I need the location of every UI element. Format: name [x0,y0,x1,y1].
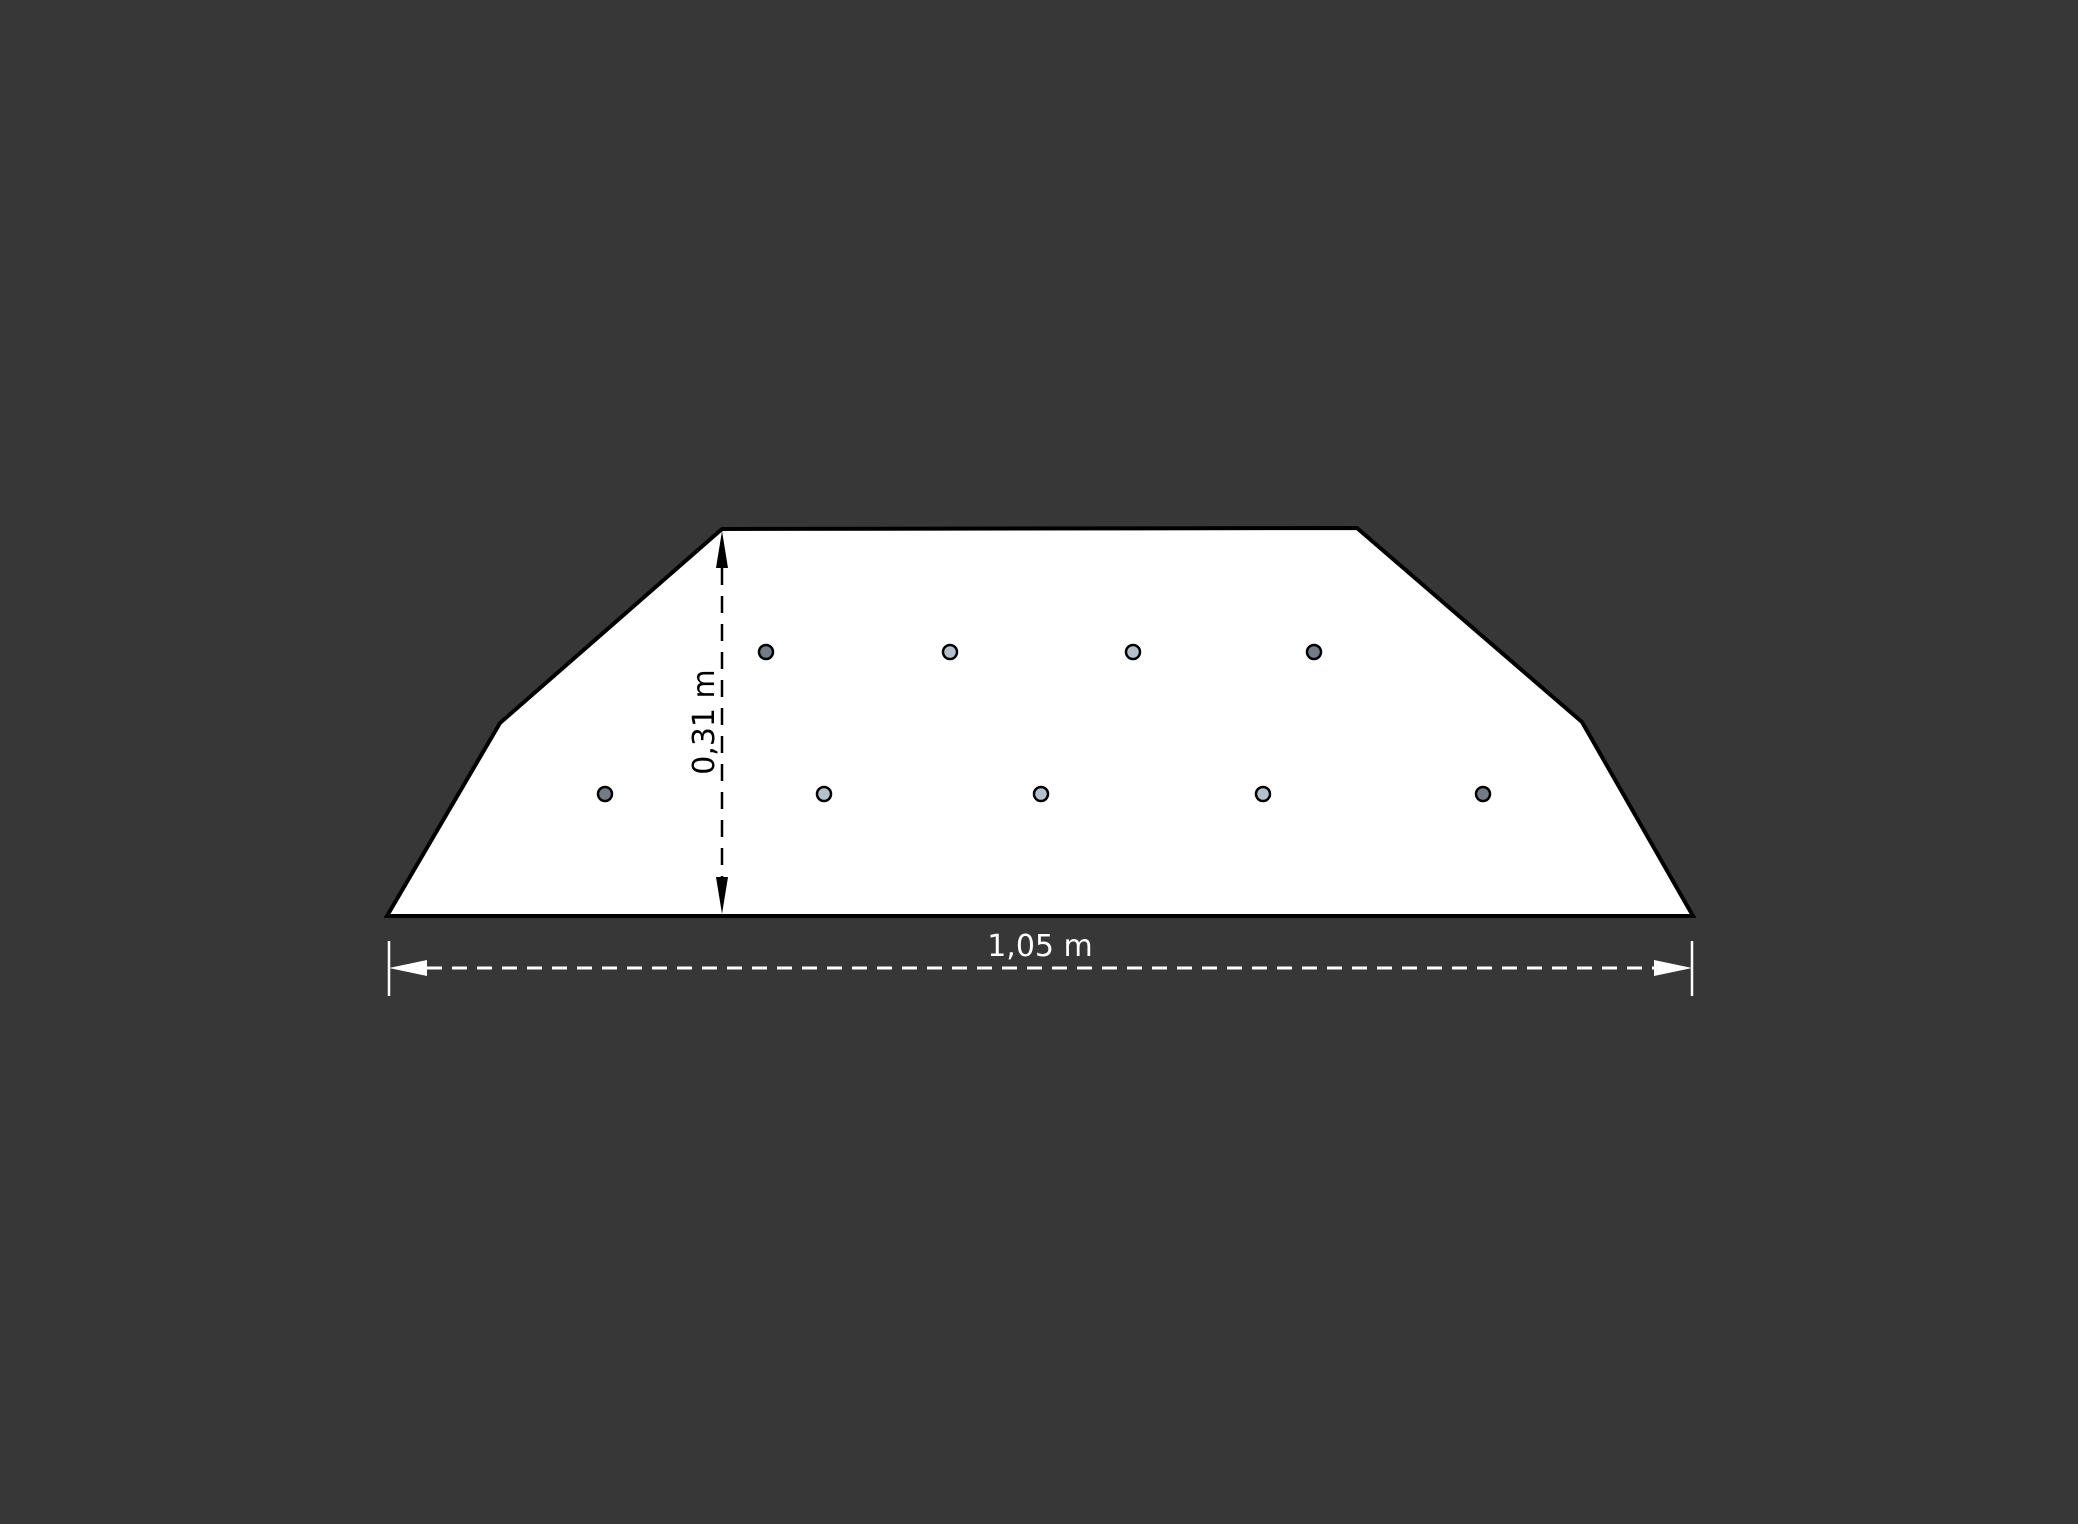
cross-section-figure: 0,31 m 1,05 m [0,0,2078,1524]
rebar-dot-row2 [1476,787,1490,801]
width-dim-arrow-left [389,960,427,976]
cross-section-polygon [387,528,1693,916]
width-dimension-label: 1,05 m [987,929,1093,964]
rebar-dot-row1 [943,645,957,659]
width-dim-arrow-right [1654,960,1692,976]
rebar-dot-row2 [1034,787,1048,801]
rebar-dot-row2 [598,787,612,801]
rebar-dot-row2 [817,787,831,801]
diagram-stage: 0,31 m 1,05 m [0,0,2078,1524]
rebar-dot-row2 [1256,787,1270,801]
shape-layer [387,528,1693,916]
height-dimension-label: 0,31 m [687,669,722,775]
rebar-dot-row1 [1307,645,1321,659]
rebar-dot-row1 [759,645,773,659]
rebar-dot-row1 [1126,645,1140,659]
